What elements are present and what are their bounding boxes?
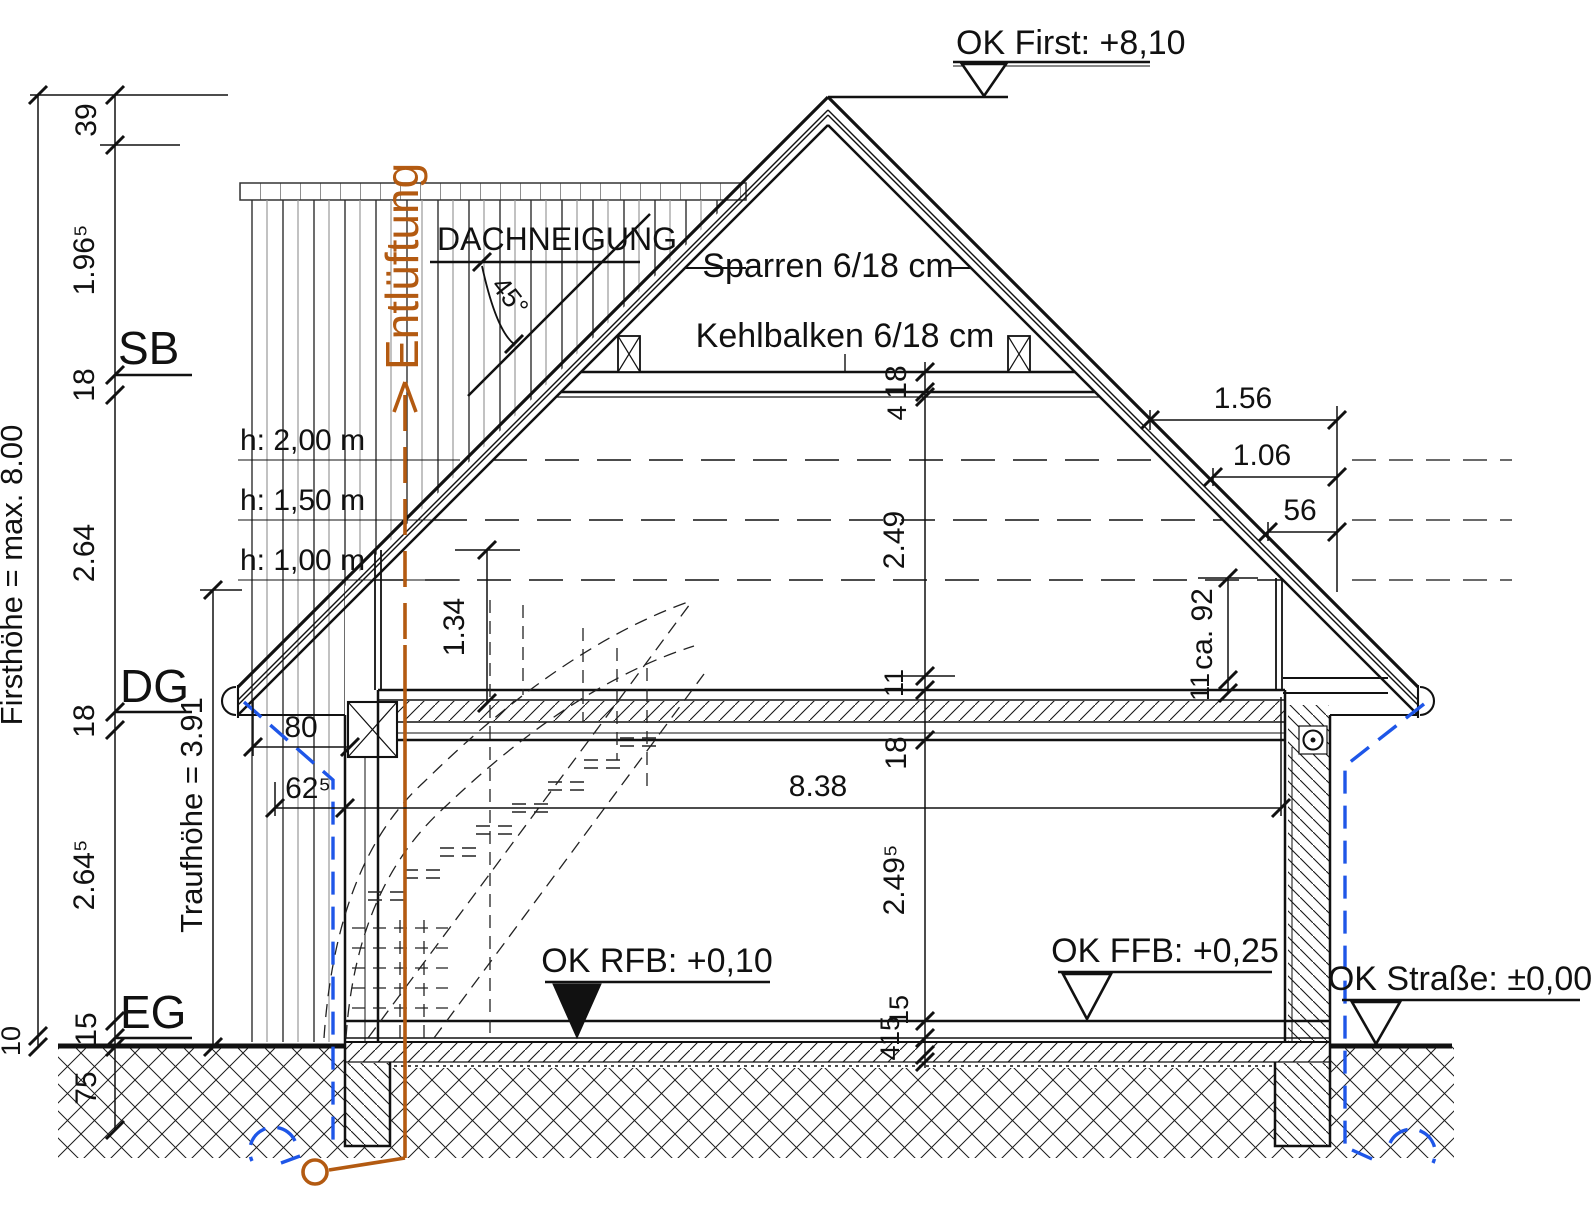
dg-floor-slab xyxy=(378,690,1285,740)
background-gable-panel xyxy=(240,183,746,1042)
ok-strasse-label: OK Straße: ±0,00 xyxy=(1328,960,1592,998)
level-ok-first: OK First: +8,10 xyxy=(828,24,1186,97)
dim-56: 56 xyxy=(1283,494,1316,527)
ok-ffb-label: OK FFB: +0,25 xyxy=(1051,932,1279,970)
dim-10: 10 xyxy=(0,1026,26,1056)
firsthoehe-label: Firsthöhe = max. 8.00 xyxy=(0,425,29,726)
headroom-label-200: h: 2,00 m xyxy=(240,424,365,457)
section-canvas: h: 2,00 m h: 1,50 m h: 1,00 m xyxy=(0,0,1592,1228)
eave-gutter-right xyxy=(1330,685,1434,718)
dim-18-slab: 18 xyxy=(880,736,913,769)
dim-4-b: 4 xyxy=(875,1045,905,1060)
dachneigung-label: DACHNEIGUNG xyxy=(437,221,677,257)
sparren-label: Sparren 6/18 cm xyxy=(702,247,953,285)
floor-label-eg: EG xyxy=(120,986,186,1038)
dim-2-64: 2.64 xyxy=(68,524,101,582)
headroom-label-150: h: 1,50 m xyxy=(240,484,365,517)
dim-1-96-5: 1.96⁵ xyxy=(68,225,101,296)
vent-label: Entlüftung xyxy=(376,163,428,370)
dim-39: 39 xyxy=(70,103,103,136)
level-markers: OK First: +8,10 OK RFB: +0,10 OK FFB: +0… xyxy=(541,24,1592,1044)
dim-18-dg: 18 xyxy=(68,704,101,737)
dim-1-06: 1.06 xyxy=(1233,439,1291,472)
ground-hatching xyxy=(58,1040,1454,1158)
dim-2-49-5: 2.49⁵ xyxy=(878,845,911,916)
level-ok-rfb: OK RFB: +0,10 xyxy=(541,942,773,1038)
dim-4-collar: 4 xyxy=(882,405,912,420)
stair-step-marks xyxy=(368,738,656,900)
level-ok-ffb: OK FFB: +0,25 xyxy=(1051,932,1279,1019)
kehlbalken-label: Kehlbalken 6/18 cm xyxy=(696,317,995,355)
ok-rfb-label: OK RFB: +0,10 xyxy=(541,942,773,980)
dim-8-38: 8.38 xyxy=(789,770,847,803)
dim-15-eg: 15 xyxy=(70,1012,103,1045)
vent-pipe-end-icon xyxy=(303,1160,327,1184)
dim-2-49: 2.49 xyxy=(878,511,911,569)
eg-floor xyxy=(345,1021,1330,1038)
dim-ca-92: ca. 92 xyxy=(1186,588,1219,670)
dim-15-b: 15 xyxy=(875,1016,905,1046)
ok-ffb-triangle-icon xyxy=(1063,974,1111,1019)
dim-11-kneewall: 11 xyxy=(1185,673,1215,701)
dim-80: 80 xyxy=(284,711,317,744)
ok-first-label: OK First: +8,10 xyxy=(956,24,1186,62)
ring-beam-left xyxy=(348,702,397,757)
house-section-drawing: h: 2,00 m h: 1,50 m h: 1,00 m xyxy=(0,0,1592,1228)
dim-2-64-5: 2.64⁵ xyxy=(68,840,101,911)
headroom-label-100: h: 1,00 m xyxy=(240,544,365,577)
dim-1-56: 1.56 xyxy=(1214,382,1272,415)
level-ok-strasse: OK Straße: ±0,00 xyxy=(1328,960,1592,1044)
ok-first-triangle-icon xyxy=(962,64,1006,96)
dim-11-dg-floor: 11 xyxy=(879,669,909,697)
dim-18-collar: 18 xyxy=(880,365,913,398)
panel-vertical-boarding xyxy=(240,200,746,1042)
dim-75: 75 xyxy=(70,1071,103,1104)
traufhoehe-label: Traufhöhe = 3.91 xyxy=(174,697,209,933)
ok-rfb-triangle-icon xyxy=(553,984,601,1038)
dim-62-5: 62⁵ xyxy=(285,772,331,805)
floor-label-dg: DG xyxy=(120,660,189,712)
panel-top-band xyxy=(240,183,746,200)
dim-18-sb: 18 xyxy=(68,368,101,401)
dim-1-34: 1.34 xyxy=(438,598,471,656)
floor-label-sb: SB xyxy=(118,322,179,374)
ok-strasse-triangle-icon xyxy=(1352,1002,1400,1044)
